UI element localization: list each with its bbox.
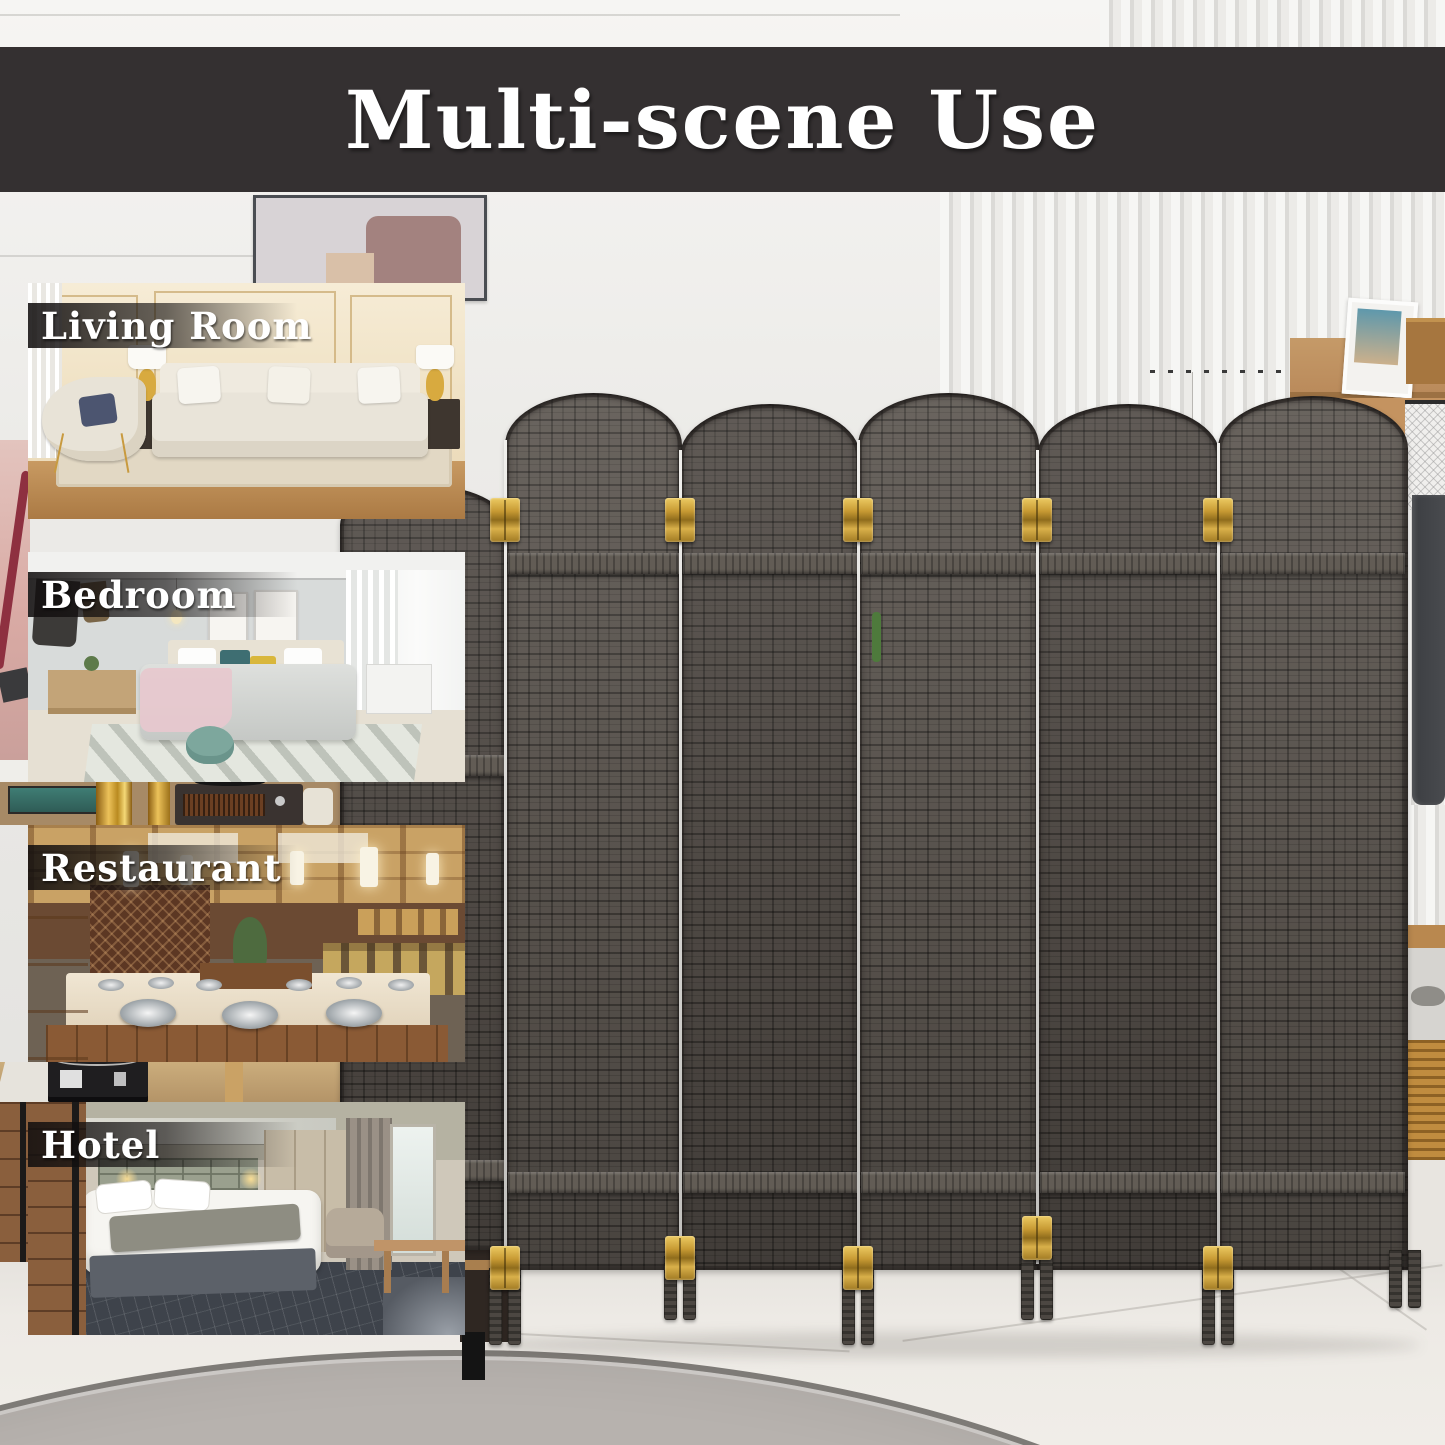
lamp-shade [128,345,166,369]
divider-panel [680,404,860,1270]
panel-rail [1221,553,1405,574]
pouf [186,726,234,764]
gold-hinge [665,1236,695,1280]
window [390,1124,436,1256]
accent-pillow [78,393,118,428]
gold-hinge [843,498,873,542]
hanging-jacket [1412,495,1445,805]
wicker-basket [1405,1040,1445,1160]
chafing-dish-large [326,999,382,1027]
buffet-table-front [46,1025,448,1062]
gold-hinge [1022,498,1052,542]
teal-glass-tabletop [8,786,100,814]
console-leg [462,1332,485,1380]
scene-label: Hotel [28,1123,160,1167]
divider-panel [858,393,1039,1270]
background-wall [1405,948,1445,1040]
panel-rail [683,1172,857,1193]
nightstand [366,664,432,714]
panel-rail [1040,1172,1217,1193]
gold-hinge [1203,498,1233,542]
ribbed-wall-paneling [1405,805,1445,925]
divider-panel [1037,404,1220,1270]
gold-hinge [665,498,695,542]
panel-rail [508,553,679,574]
lamp-shade [416,345,454,369]
desk-leg [442,1251,449,1293]
panel-gap [1217,443,1220,1264]
desk-top [374,1240,465,1251]
mesh-panel [1405,400,1445,510]
gold-hinge [490,498,520,542]
panel-gap [1036,450,1039,1264]
record-player [175,784,303,825]
pink-blanket [140,668,232,732]
divider-floor-shadow [470,1332,1420,1358]
panel-rail [1221,1172,1405,1193]
carpet-light-area [383,1277,465,1335]
wall-sconce-glow [240,1168,262,1190]
book-spine-label [114,1072,126,1086]
gold-hinge [1203,1246,1233,1290]
scene-thumbnail-restaurant: Restaurant [28,825,465,1062]
panel-leg [1408,1250,1421,1308]
gold-hinge [490,1246,520,1290]
lattice-screen [90,885,210,977]
wall-molding [0,255,255,257]
chafing-dish [98,979,124,991]
pillow [153,1178,211,1212]
chafing-dish [286,979,312,991]
divider-panel [505,393,682,1270]
scene-label-band: Restaurant [28,845,334,890]
desk-leg [384,1251,391,1293]
chafing-dish-large [222,1001,278,1029]
plant-leaves [872,612,881,662]
table-leg [225,1062,243,1102]
pendant-lantern [360,847,378,887]
panel-gap [504,440,507,1264]
chafing-dish-large [120,999,176,1027]
wall-art-glow [358,909,458,935]
gold-hinge [1022,1216,1052,1260]
scene-thumbnail-bedroom: Bedroom [28,552,465,782]
page-title: Multi-scene Use [345,73,1100,167]
pendant-lantern [426,853,439,885]
panel-gap [857,440,860,1264]
scene-thumbnail-living-room: Living Room [28,283,465,519]
panel-leg [1389,1250,1402,1308]
scene-label: Bedroom [28,573,237,617]
abstract-painting [0,440,30,760]
wood-rail [1405,925,1445,948]
scene-label-band: Living Room [28,303,334,348]
chafing-dish [388,979,414,991]
panel-rail [861,1172,1036,1193]
panel-rail [508,1172,679,1193]
scene-label: Restaurant [28,846,282,890]
gold-lamp-base [426,369,444,401]
wall-molding [0,14,900,16]
sideboard [48,670,136,714]
slipper [1411,986,1445,1006]
title-bar: Multi-scene Use [0,47,1445,192]
book-spine-label [60,1070,82,1088]
pillow [95,1179,154,1215]
painting-brushstroke [0,470,31,669]
black-book [48,1060,148,1102]
chafing-dish [336,977,362,989]
scene-thumbnail-hotel: Hotel [28,1102,465,1335]
speaker-grille [183,794,265,816]
chafing-dish [196,979,222,991]
product-infographic: Living Room Bedroom [0,0,1445,1445]
panel-leg [1021,1256,1034,1320]
brass-cylinder [148,780,170,825]
divider-panel [1218,396,1408,1270]
throw-pillow [267,366,311,404]
gold-hinge [843,1246,873,1290]
brass-cylinder [96,780,132,825]
panel-rail [1040,553,1217,574]
ribbed-wall-paneling [1100,0,1445,47]
volume-knob [275,796,285,806]
scene-label: Living Room [28,304,313,348]
photo-frame-picture [1354,308,1402,365]
scene-label-band: Hotel [28,1122,334,1167]
cushion [303,788,333,825]
wooden-box [1406,318,1445,384]
panel-gap [679,450,682,1264]
floor-seam [903,1264,1443,1342]
throw-pillow [177,366,221,405]
panel-rail [861,553,1036,574]
throw-pillow [357,366,401,404]
potted-plant [84,656,99,671]
panel-leg [1040,1256,1053,1320]
scene-label-band: Bedroom [28,572,334,617]
panel-rail [683,553,857,574]
chafing-dish [148,977,174,989]
bed-base [89,1248,316,1298]
